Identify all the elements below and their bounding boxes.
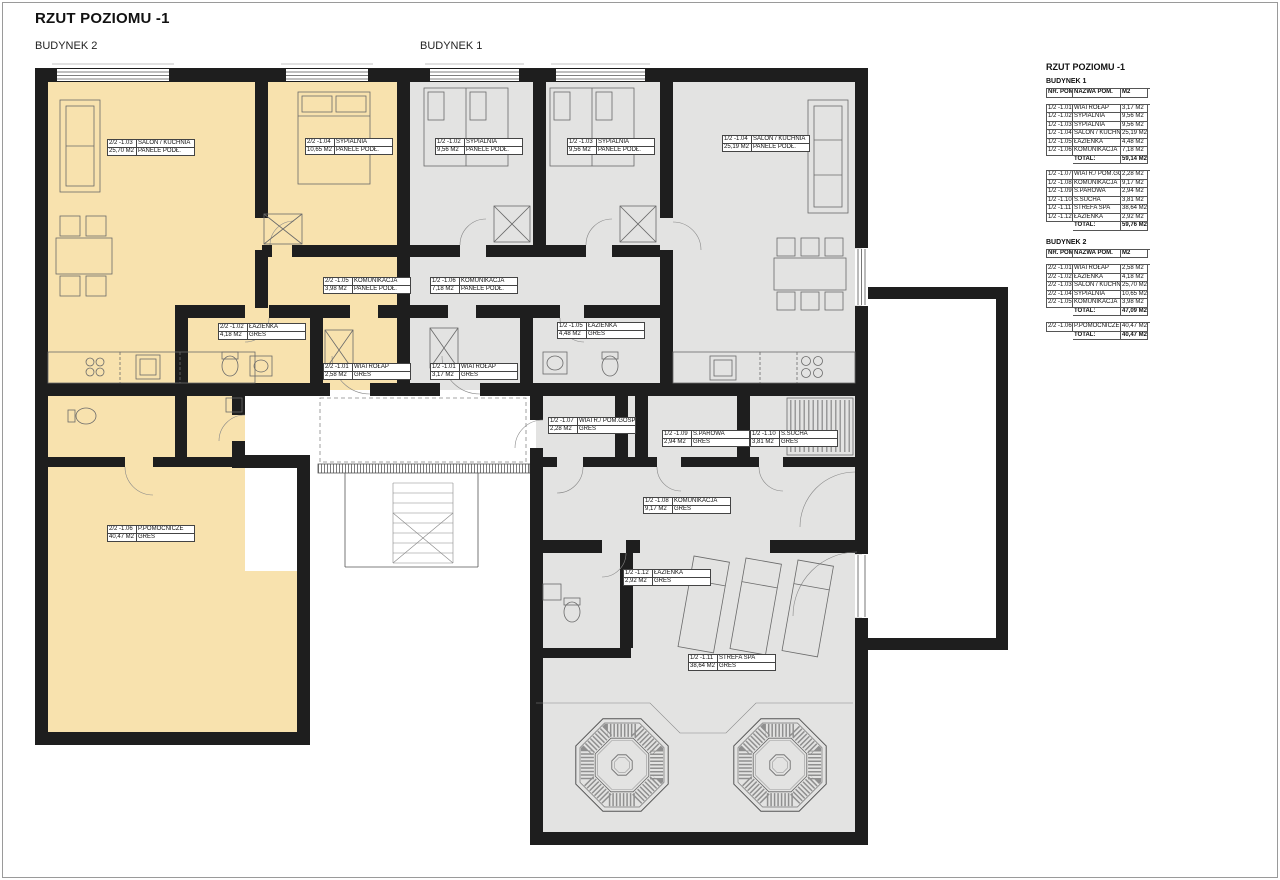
legend-cell: 1/2 -1.11	[1046, 205, 1073, 214]
legend-cell: WIATR./ POM.GOSP.	[1073, 171, 1121, 180]
legend-cell: 1/2 -1.12	[1046, 214, 1073, 223]
legend-cell: SYPIALNIA	[1073, 113, 1121, 122]
legend-cell: 10,65 M2	[1121, 291, 1148, 300]
lightwell-walls	[868, 287, 1008, 650]
legend-row: 1/2 -1.06KOMUNIKACJA7,18 M2	[1046, 147, 1150, 156]
legend-row: 2/2 -1.03SALON / KUCHNIA25,70 M2	[1046, 282, 1150, 291]
legend-cell: 2/2 -1.03	[1046, 282, 1073, 291]
legend-row: 1/2 -1.03SYPIALNIA9,56 M2	[1046, 122, 1150, 131]
floor-plan-page: { "page": { "title": "RZUT POZIOMU -1", …	[0, 0, 1280, 880]
legend-row: 1/2 -1.08KOMUNIKACJA9,17 M2	[1046, 180, 1150, 189]
legend-total-row: TOTAL:47,09 M2	[1046, 308, 1150, 317]
legend-cell: 2/2 -1.06	[1046, 323, 1073, 332]
room-label: 1/2 -1.10S.SUCHA3,81 M2GRES	[750, 430, 838, 447]
window	[425, 64, 524, 81]
legend-cell: SALON / KUCHNIA	[1073, 282, 1121, 291]
legend-cell: WIATROŁAP	[1073, 265, 1121, 274]
legend-cell: ŁAZIENKA	[1073, 139, 1121, 148]
legend-row: 2/2 -1.01WIATROŁAP2,58 M2	[1046, 265, 1150, 274]
legend-cell: 4,18 M2	[1121, 274, 1148, 283]
legend-header: NR. POM.NAZWA POM.M2	[1046, 249, 1150, 259]
legend-cell: 9,17 M2	[1121, 180, 1148, 189]
legend-row: 1/2 -1.10S.SUCHA3,81 M2	[1046, 197, 1150, 206]
legend-building1-title: BUDYNEK 1	[1046, 78, 1150, 85]
room-label: 1/2 -1.03SYPIALNIA9,56 M2PANELE PODŁ.	[567, 138, 655, 155]
legend-row: 1/2 -1.01WIATROŁAP3,17 M2	[1046, 105, 1150, 114]
legend-cell: 59,14 M2	[1121, 156, 1148, 165]
legend-cell: 9,56 M2	[1121, 122, 1148, 131]
room-label: 1/2 -1.05ŁAZIENKA4,48 M2GRES	[557, 322, 645, 339]
legend-row: 2/2 -1.02ŁAZIENKA4,18 M2	[1046, 274, 1150, 283]
legend-cell	[1046, 156, 1073, 164]
legend-row: 1/2 -1.12ŁAZIENKA2,92 M2	[1046, 214, 1150, 223]
legend-cell: 1/2 -1.04	[1046, 130, 1073, 139]
legend-panel: RZUT POZIOMU -1 BUDYNEK 1 NR. POM.NAZWA …	[1046, 62, 1150, 340]
room-label: 1/2 -1.06KOMUNIKACJA7,18 M2PANELE PODŁ.	[430, 277, 518, 294]
entrance-walkway	[245, 396, 530, 571]
legend-cell: KOMUNIKACJA	[1073, 147, 1121, 156]
legend-title: RZUT POZIOMU -1	[1046, 62, 1150, 72]
legend-col-nr: NR. POM.	[1046, 250, 1073, 259]
legend-cell: 3,98 M2	[1121, 299, 1148, 308]
window	[52, 64, 174, 81]
legend-cell: 2,58 M2	[1121, 265, 1148, 274]
legend-cell: 25,19 M2	[1121, 130, 1148, 139]
legend-cell: 2,94 M2	[1121, 188, 1148, 197]
room-label: 1/2 -1.07WIATR./ POM.GOSP.2,28 M2GRES	[548, 417, 636, 434]
legend-cell: TOTAL:	[1073, 156, 1121, 165]
room-label: 1/2 -1.09S.PAROWA2,94 M2GRES	[662, 430, 750, 447]
window	[855, 249, 868, 305]
window	[281, 64, 373, 81]
legend-cell: SALON / KUCHNIA	[1073, 130, 1121, 139]
room-label: 1/2 -1.08KOMUNIKACJA9,17 M2GRES	[643, 497, 731, 514]
room-label: 1/2 -1.12ŁAZIENKA2,92 M2GRES	[623, 569, 711, 586]
legend-row: 1/2 -1.09S.PAROWA2,94 M2	[1046, 188, 1150, 197]
legend-cell: 7,18 M2	[1121, 147, 1148, 156]
legend-cell: 1/2 -1.05	[1046, 139, 1073, 148]
legend-cell	[1046, 222, 1073, 230]
room-label: 1/2 -1.01WIATROŁAP3,17 M2GRES	[430, 363, 518, 380]
legend-cell: 2/2 -1.04	[1046, 291, 1073, 300]
legend-row: 2/2 -1.05KOMUNIKACJA3,98 M2	[1046, 299, 1150, 308]
legend-block-b2-aux: 2/2 -1.06P.POMOCNICZE40,47 M2TOTAL:40,47…	[1046, 322, 1150, 340]
legend-cell: TOTAL:	[1073, 308, 1121, 317]
legend-cell: 2/2 -1.05	[1046, 299, 1073, 308]
room-label: 1/2 -1.04SALON / KUCHNIA25,19 M2PANELE P…	[722, 135, 810, 152]
legend-cell: S.SUCHA	[1073, 197, 1121, 206]
room-label: 2/2 -1.02ŁAZIENKA4,18 M2GRES	[218, 323, 306, 340]
legend-col-nr: NR. POM.	[1046, 89, 1073, 98]
legend-block-b1-spa: 1/2 -1.07WIATR./ POM.GOSP.2,28 M21/2 -1.…	[1046, 170, 1150, 231]
room-label: 2/2 -1.04SYPIALNIA10,65 M2PANELE PODŁ.	[305, 138, 393, 155]
legend-cell: 1/2 -1.01	[1046, 105, 1073, 114]
room-label: 1/2 -1.11STREFA SPA38,64 M2GRES	[688, 654, 776, 671]
legend-cell: 3,81 M2	[1121, 197, 1148, 206]
legend-building2-title: BUDYNEK 2	[1046, 239, 1150, 246]
legend-cell: 38,64 M2	[1121, 205, 1148, 214]
legend-cell: 9,56 M2	[1121, 113, 1148, 122]
legend-cell: 2/2 -1.01	[1046, 265, 1073, 274]
room-label: 2/2 -1.06P.POMOCNICZE40,47 M2GRES	[107, 525, 195, 542]
legend-cell: 2/2 -1.02	[1046, 274, 1073, 283]
legend-col-m2: M2	[1121, 89, 1148, 98]
legend-cell: 40,47 M2	[1121, 323, 1148, 332]
legend-cell: KOMUNIKACJA	[1073, 180, 1121, 189]
legend-total-row: TOTAL:59,76 M2	[1046, 222, 1150, 231]
legend-cell: ŁAZIENKA	[1073, 274, 1121, 283]
legend-cell: 1/2 -1.07	[1046, 171, 1073, 180]
spa-exterior-door	[855, 555, 868, 617]
room-label: 2/2 -1.05KOMUNIKACJA3,98 M2PANELE PODŁ.	[323, 277, 411, 294]
legend-cell: STREFA SPA	[1073, 205, 1121, 214]
legend-total-row: TOTAL:40,47 M2	[1046, 332, 1150, 341]
legend-col-m2: M2	[1121, 250, 1148, 259]
room-label: 2/2 -1.01WIATROŁAP2,58 M2GRES	[323, 363, 411, 380]
legend-header: NR. POM.NAZWA POM.M2	[1046, 88, 1150, 98]
legend-block-b1-apartment: 1/2 -1.01WIATROŁAP3,17 M21/2 -1.02SYPIAL…	[1046, 104, 1150, 165]
window	[551, 64, 650, 81]
legend-cell: TOTAL:	[1073, 332, 1121, 341]
legend-cell: 25,70 M2	[1121, 282, 1148, 291]
legend-row: 1/2 -1.04SALON / KUCHNIA25,19 M2	[1046, 130, 1150, 139]
legend-cell: 2,92 M2	[1121, 214, 1148, 223]
room-label: 1/2 -1.02SYPIALNIA9,56 M2PANELE PODŁ.	[435, 138, 523, 155]
legend-cell	[1046, 332, 1073, 340]
room-label: 2/2 -1.03SALON / KUCHNIA25,70 M2PANELE P…	[107, 139, 195, 156]
legend-cell: 40,47 M2	[1121, 332, 1148, 341]
legend-col-name: NAZWA POM.	[1073, 89, 1121, 98]
legend-cell: SYPIALNIA	[1073, 291, 1121, 300]
legend-cell: SYPIALNIA	[1073, 122, 1121, 131]
legend-total-row: TOTAL:59,14 M2	[1046, 156, 1150, 165]
legend-col-name: NAZWA POM.	[1073, 250, 1121, 259]
legend-row: 1/2 -1.05ŁAZIENKA4,48 M2	[1046, 139, 1150, 148]
legend-cell: 47,09 M2	[1121, 308, 1148, 317]
legend-cell: TOTAL:	[1073, 222, 1121, 231]
legend-row: 2/2 -1.06P.POMOCNICZE40,47 M2	[1046, 323, 1150, 332]
legend-cell: 1/2 -1.10	[1046, 197, 1073, 206]
legend-cell: WIATROŁAP	[1073, 105, 1121, 114]
legend-row: 1/2 -1.07WIATR./ POM.GOSP.2,28 M2	[1046, 171, 1150, 180]
legend-row: 2/2 -1.04SYPIALNIA10,65 M2	[1046, 291, 1150, 300]
legend-cell: 1/2 -1.08	[1046, 180, 1073, 189]
legend-row: 1/2 -1.11STREFA SPA38,64 M2	[1046, 205, 1150, 214]
legend-cell: 1/2 -1.02	[1046, 113, 1073, 122]
legend-cell: 1/2 -1.06	[1046, 147, 1073, 156]
legend-cell: S.PAROWA	[1073, 188, 1121, 197]
legend-cell: 1/2 -1.09	[1046, 188, 1073, 197]
legend-row: 1/2 -1.02SYPIALNIA9,56 M2	[1046, 113, 1150, 122]
legend-cell	[1046, 308, 1073, 316]
legend-cell: 4,48 M2	[1121, 139, 1148, 148]
legend-cell: ŁAZIENKA	[1073, 214, 1121, 223]
legend-cell: 3,17 M2	[1121, 105, 1148, 114]
legend-cell: KOMUNIKACJA	[1073, 299, 1121, 308]
legend-cell: 59,76 M2	[1121, 222, 1148, 231]
legend-block-b2-apartment: 2/2 -1.01WIATROŁAP2,58 M22/2 -1.02ŁAZIEN…	[1046, 264, 1150, 316]
legend-cell: 1/2 -1.03	[1046, 122, 1073, 131]
legend-cell: 2,28 M2	[1121, 171, 1148, 180]
legend-cell: P.POMOCNICZE	[1073, 323, 1121, 332]
